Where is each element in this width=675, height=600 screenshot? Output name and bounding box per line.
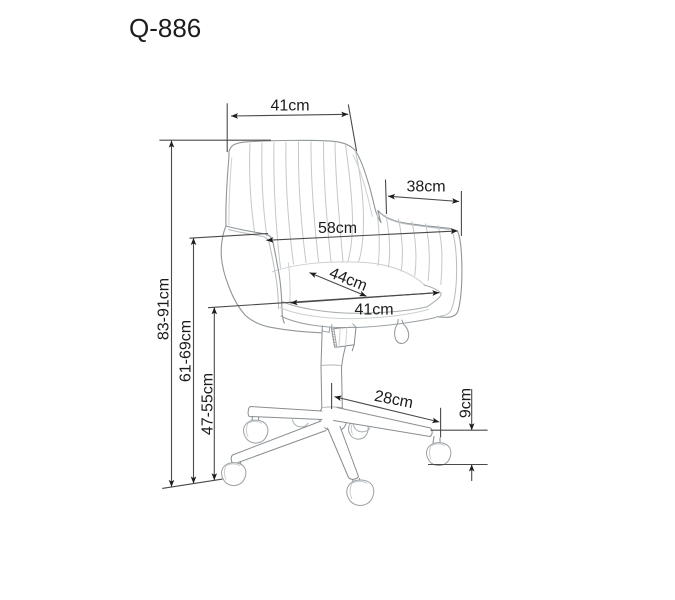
svg-text:47-55cm: 47-55cm — [200, 373, 217, 435]
svg-text:61-69cm: 61-69cm — [178, 320, 195, 382]
svg-text:38cm: 38cm — [406, 178, 445, 195]
svg-text:58cm: 58cm — [318, 220, 357, 237]
svg-text:41cm: 41cm — [354, 302, 393, 319]
svg-text:Q-886: Q-886 — [129, 13, 201, 43]
svg-text:41cm: 41cm — [270, 97, 309, 114]
svg-text:9cm: 9cm — [458, 388, 475, 418]
svg-text:83-91cm: 83-91cm — [156, 278, 173, 340]
